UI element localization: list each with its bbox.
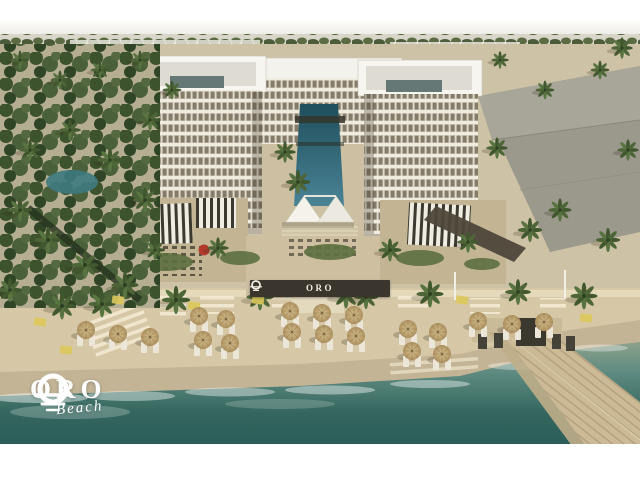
palm-tree [139, 109, 161, 131]
palm-tree [536, 81, 555, 100]
right-penthouse-glass [386, 80, 442, 92]
palm-tree [457, 231, 479, 253]
palm-tree [596, 228, 620, 252]
sun-over-waves-icon [250, 280, 262, 293]
palm-tree [486, 137, 508, 159]
palm-tree [505, 279, 531, 305]
palm-tree [72, 252, 99, 279]
palm-tree [35, 227, 62, 254]
palm-tree [417, 281, 444, 308]
palm-tree [207, 237, 229, 259]
beach-mat [60, 345, 73, 355]
palm-tree [274, 141, 296, 163]
palm-tree [98, 148, 122, 172]
beach-mat [112, 295, 125, 305]
palm-tree [51, 71, 70, 90]
brand-subname: Beach [55, 398, 107, 419]
palm-tree [518, 218, 542, 242]
left-penthouse-glass [170, 76, 224, 88]
palm-tree [286, 170, 310, 194]
palm-tree [11, 51, 30, 70]
palm-tree [19, 139, 41, 161]
frame-bottom [0, 444, 640, 480]
pool-bridge [295, 116, 345, 123]
palm-tree [91, 61, 110, 80]
beach-mat [34, 317, 47, 327]
palm-tree [617, 139, 639, 161]
beach-mat [580, 313, 593, 323]
rendering-canvas: ORO ORO Beach [0, 0, 640, 480]
beach-sign-text: ORO [306, 284, 334, 293]
garden-pool [46, 170, 98, 194]
beach-sign-wall: ORO [250, 280, 390, 297]
palm-tree [491, 51, 509, 69]
palm-tree [49, 293, 76, 320]
brand-logo: ORO Beach [30, 370, 107, 417]
palm-tree [131, 51, 150, 70]
palm-tree [571, 283, 598, 310]
palm-tree [145, 240, 165, 260]
beach-mat [456, 295, 469, 305]
palm-tree [89, 291, 116, 318]
palm-tree [59, 119, 81, 141]
palm-tree [162, 286, 190, 314]
frame-top [0, 0, 640, 20]
palm-tree [611, 37, 633, 59]
palm-tree [163, 81, 182, 100]
palm-tree [112, 272, 139, 299]
striped-pergola [196, 198, 236, 228]
palm-tree [549, 199, 572, 222]
palm-tree [133, 188, 157, 212]
palm-tree [379, 239, 402, 262]
palm-tree [591, 61, 610, 80]
palm-tree [8, 198, 32, 222]
